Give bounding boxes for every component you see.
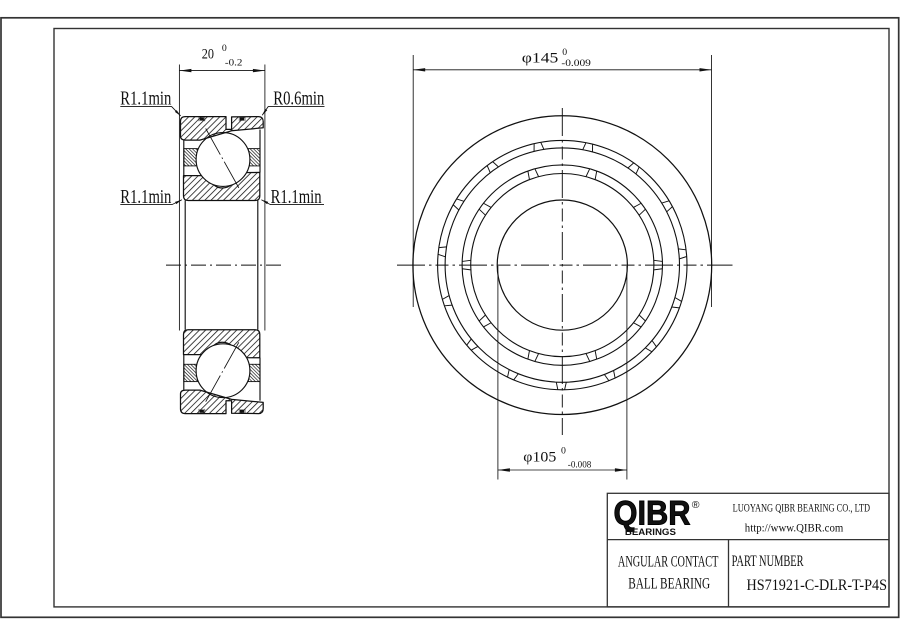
svg-text:R0.6min: R0.6min [273,88,324,109]
svg-text:-0.008: -0.008 [568,460,592,471]
svg-text:ANGULAR CONTACT: ANGULAR CONTACT [618,554,719,571]
svg-text:0: 0 [222,43,227,54]
svg-text:BEARINGS: BEARINGS [625,527,676,537]
svg-text:-0.2: -0.2 [225,57,243,68]
svg-text:LUOYANG QIBR BEARING CO., LTD: LUOYANG QIBR BEARING CO., LTD [733,501,871,514]
svg-text:®: ® [692,499,700,511]
svg-text:φ145: φ145 [522,51,559,67]
svg-text:φ105: φ105 [523,450,556,466]
svg-text:R1.1min: R1.1min [120,88,171,109]
svg-text:BALL BEARING: BALL BEARING [628,575,710,592]
svg-text:20: 20 [202,47,214,63]
svg-text:0: 0 [561,446,566,457]
svg-text:-0.009: -0.009 [561,58,591,69]
svg-text:0: 0 [562,47,567,58]
svg-text:PART NUMBER: PART NUMBER [732,553,804,570]
svg-text:http://www.QIBR.com: http://www.QIBR.com [745,520,844,534]
svg-text:HS71921-C-DLR-T-P4S: HS71921-C-DLR-T-P4S [747,577,888,594]
